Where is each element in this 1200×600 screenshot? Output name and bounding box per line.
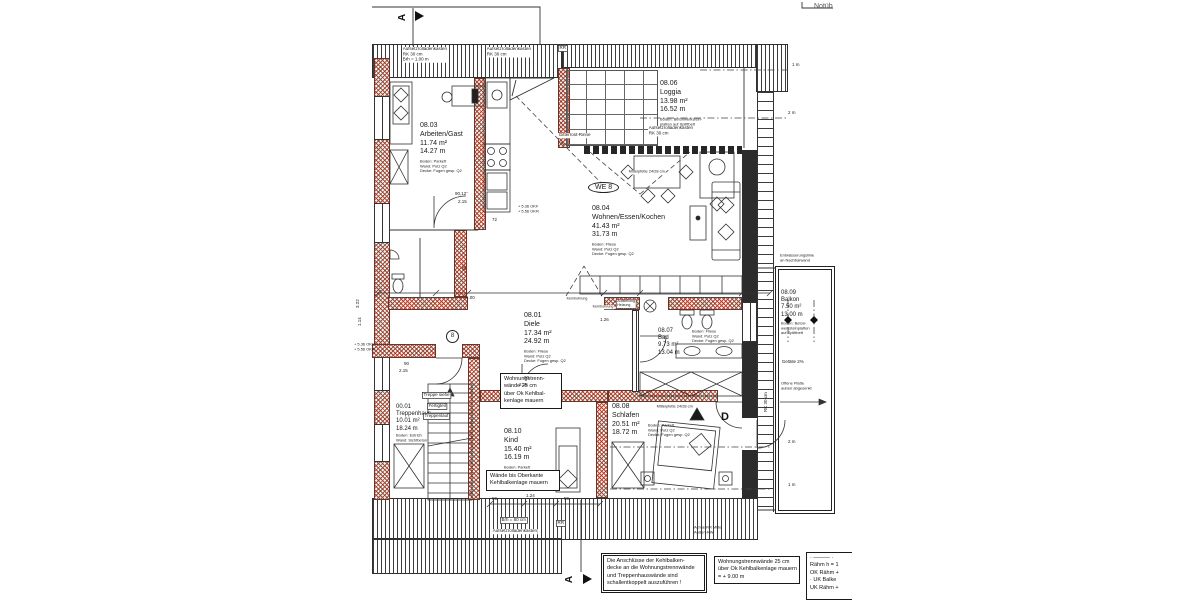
dim-stair-door-w: 90 bbox=[404, 362, 409, 367]
level-label-kitchen: + 5.36 OKF+ 5.56 OKR bbox=[518, 205, 539, 214]
dim-72: 72 bbox=[492, 218, 497, 223]
heizung-label: AufstellungHeizung bbox=[616, 299, 636, 308]
room-finish-treppenhaus: Boden: EstrichWand: Sichtbeton bbox=[396, 434, 427, 443]
achse-rr-label: Achse RR MitteAußen-RW bbox=[694, 526, 722, 535]
height-lines bbox=[610, 70, 814, 489]
notueberlauf-label: Notüb bbox=[814, 3, 833, 10]
section-arrow-bottom bbox=[583, 574, 592, 584]
marker-b: B bbox=[462, 266, 466, 272]
section-arrow-top bbox=[415, 11, 424, 21]
mittelpfette-label-2: Mittelpfette 24/28 cm bbox=[656, 405, 694, 409]
dim-door-angle: 90,12° bbox=[455, 192, 468, 197]
brh80-label: Brh = 80 cm bbox=[500, 517, 527, 524]
note-trennwand: Wohnungstrenn-wände 25 cmüber Ok Kehlbal… bbox=[500, 373, 562, 409]
gefaelle-label: Gefälle 2% bbox=[781, 360, 805, 365]
gitterrost-label: Gitterrost-Rinne bbox=[558, 133, 591, 138]
note-box-raehm-clipped: · ——— ·Rähm h = 1OK Rähm +· UK BalkeUK R… bbox=[806, 552, 852, 600]
unit-label: WE 8 bbox=[588, 182, 619, 193]
dim-100: 1.00 bbox=[466, 296, 475, 301]
scale-1m-bottom: 1 m bbox=[788, 483, 796, 488]
note-box-trennwaende: Wohnungstrennwände 25 cmüber Ok Kehlbalk… bbox=[714, 556, 800, 584]
dim-kind-door-h: 2.15 bbox=[519, 383, 528, 388]
note-waende: Wände bis OberkanteKehlbalkenlage mauern bbox=[486, 470, 560, 491]
room-label-arbeiten: 08.03Arbeiten/Gast11.74 m²14.27 m bbox=[420, 122, 463, 157]
mittelpfette-label-1: Mittelpfette 24/28 cm bbox=[628, 170, 666, 174]
room-label-wohnen: 08.04Wohnen/Essen/Kochen41.43 m²31.73 m bbox=[592, 205, 665, 240]
room-finish-schlafen: Boden: ParkettWand: Putz Q2Decke: Fugen … bbox=[648, 424, 690, 438]
plan-linework bbox=[0, 0, 1200, 600]
entwaesserung-label: Entwässerungsliniean Nachbarwand bbox=[780, 254, 814, 263]
rollladen-label-2: AufsetzrolladenkastenRK 30 cm bbox=[486, 47, 532, 57]
offene-platte-label: Offene Platteaußen abgesenkt bbox=[781, 382, 812, 391]
room-finish-loggia: Boden: Betonwerkstein-platten auf Splitt… bbox=[660, 118, 702, 127]
room-finish-bad: Boden: FlieseWand: Putz Q2Decke: Fugen g… bbox=[692, 330, 734, 344]
scale-2m-top: 2 m bbox=[788, 111, 796, 116]
dim-stair-door-h: 2.15 bbox=[399, 369, 408, 374]
room-finish-wohnen: Boden: FlieseWand: Putz Q2Decke: Fugen g… bbox=[592, 243, 634, 257]
marker-circle-8: 8 bbox=[446, 330, 459, 343]
rr-label-bottom: RR bbox=[556, 520, 566, 527]
section-marker-a-top: A bbox=[397, 14, 408, 21]
dim-door-height-1: 2.15 bbox=[458, 200, 467, 205]
room-finish-balkon: Boden: Beton-werksteinplattenauf Splittb… bbox=[781, 322, 810, 336]
kernbohrung-label-1: Kernbohrung bbox=[566, 297, 588, 301]
floor-plan-canvas: A A AufsetzrolladenkastenRK 30 cmBrh = 1… bbox=[0, 0, 1200, 600]
treppe-chip-2: Fertigteil bbox=[427, 403, 447, 410]
rollladen-label-1: AufsetzrolladenkastenRK 30 cmBrh = 1.00 … bbox=[402, 47, 448, 63]
room-label-schlafen: 08.08Schlafen20.51 m²18.72 m bbox=[612, 403, 640, 438]
dim-59-right: 59 bbox=[564, 497, 569, 502]
room-label-diele: 08.01Diele17.34 m²24.92 m bbox=[524, 312, 552, 347]
room-label-loggia: 08.06Loggia13.98 m²16.52 m bbox=[660, 80, 688, 115]
room-finish-diele: Boden: FlieseWand: Putz Q2Decke: Fugen g… bbox=[524, 350, 566, 364]
scale-1m-top: 1 m bbox=[792, 63, 800, 68]
kernbohrung-label-2: Kernbohrung bbox=[592, 305, 614, 309]
treppe-chip-1: Treppe siehe bbox=[422, 392, 451, 399]
outline-lines bbox=[372, 2, 833, 572]
section-marker-a-bottom: A bbox=[564, 576, 575, 583]
dim-kind-door-w: 90 bbox=[524, 376, 529, 381]
room-label-kind: 08.10Kind15.40 m²16.19 m bbox=[504, 428, 532, 463]
room-finish-arbeiten: Boden: ParkettWand: Putz Q2Decke: Fugen … bbox=[420, 160, 462, 174]
rr-label-top: RR bbox=[558, 45, 568, 52]
dim-322-vertical: 3.22 bbox=[356, 299, 361, 308]
room-label-bad: 08.07Bad9.73 m²13.04 m bbox=[658, 328, 680, 357]
dim-124: 1.24 bbox=[526, 494, 535, 499]
rollladen-label-bottom: Aufsetzrolladenkasten bbox=[492, 529, 538, 534]
marker-d: D bbox=[721, 411, 729, 423]
level-label-west: + 5.36 OKF+ 5.56 OKR bbox=[354, 343, 375, 352]
dim-59-left: 59 bbox=[492, 497, 497, 502]
dim-126: 1.26 bbox=[600, 318, 609, 323]
treppe-chip-3: Treppenlauf bbox=[423, 413, 450, 420]
stairs bbox=[428, 384, 472, 500]
room-label-balkon: 08.09Balkon7.50 m²13.00 m bbox=[781, 290, 803, 319]
rollladen-label-loggia: AufsetzrolladenkastenRK 30 cm bbox=[648, 126, 694, 136]
rk30-vertical-label: RK 30 cm bbox=[764, 392, 769, 412]
scale-2m-bottom: 2 m bbox=[788, 440, 796, 445]
dim-114-vertical: 1.14 bbox=[358, 317, 363, 326]
note-box-schallentkopplung: Die Anschlüsse der Kehlbalken-decke an d… bbox=[603, 555, 705, 591]
